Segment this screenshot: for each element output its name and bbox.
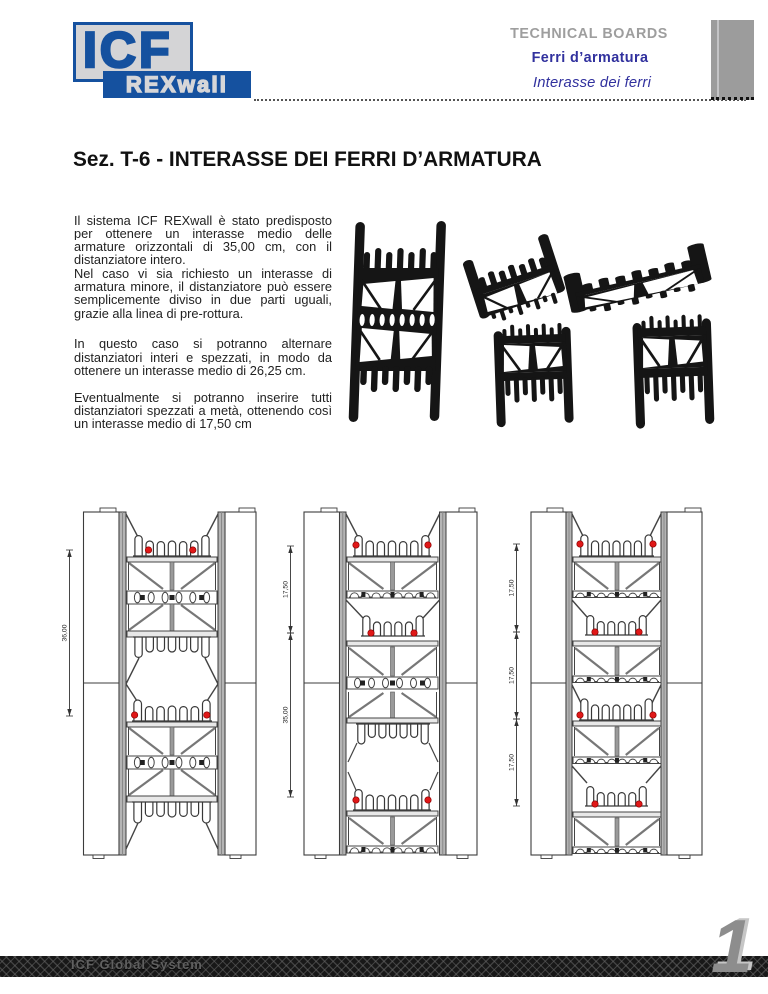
svg-text:ICF: ICF <box>83 22 173 77</box>
svg-text:REXwall: REXwall <box>126 72 228 97</box>
svg-text:17,50: 17,50 <box>509 667 516 684</box>
svg-text:17,50: 17,50 <box>509 579 516 596</box>
svg-text:17,50: 17,50 <box>283 581 290 598</box>
svg-text:36,00: 36,00 <box>62 624 69 641</box>
svg-text:35,00: 35,00 <box>283 706 290 723</box>
svg-text:17,50: 17,50 <box>509 754 516 771</box>
